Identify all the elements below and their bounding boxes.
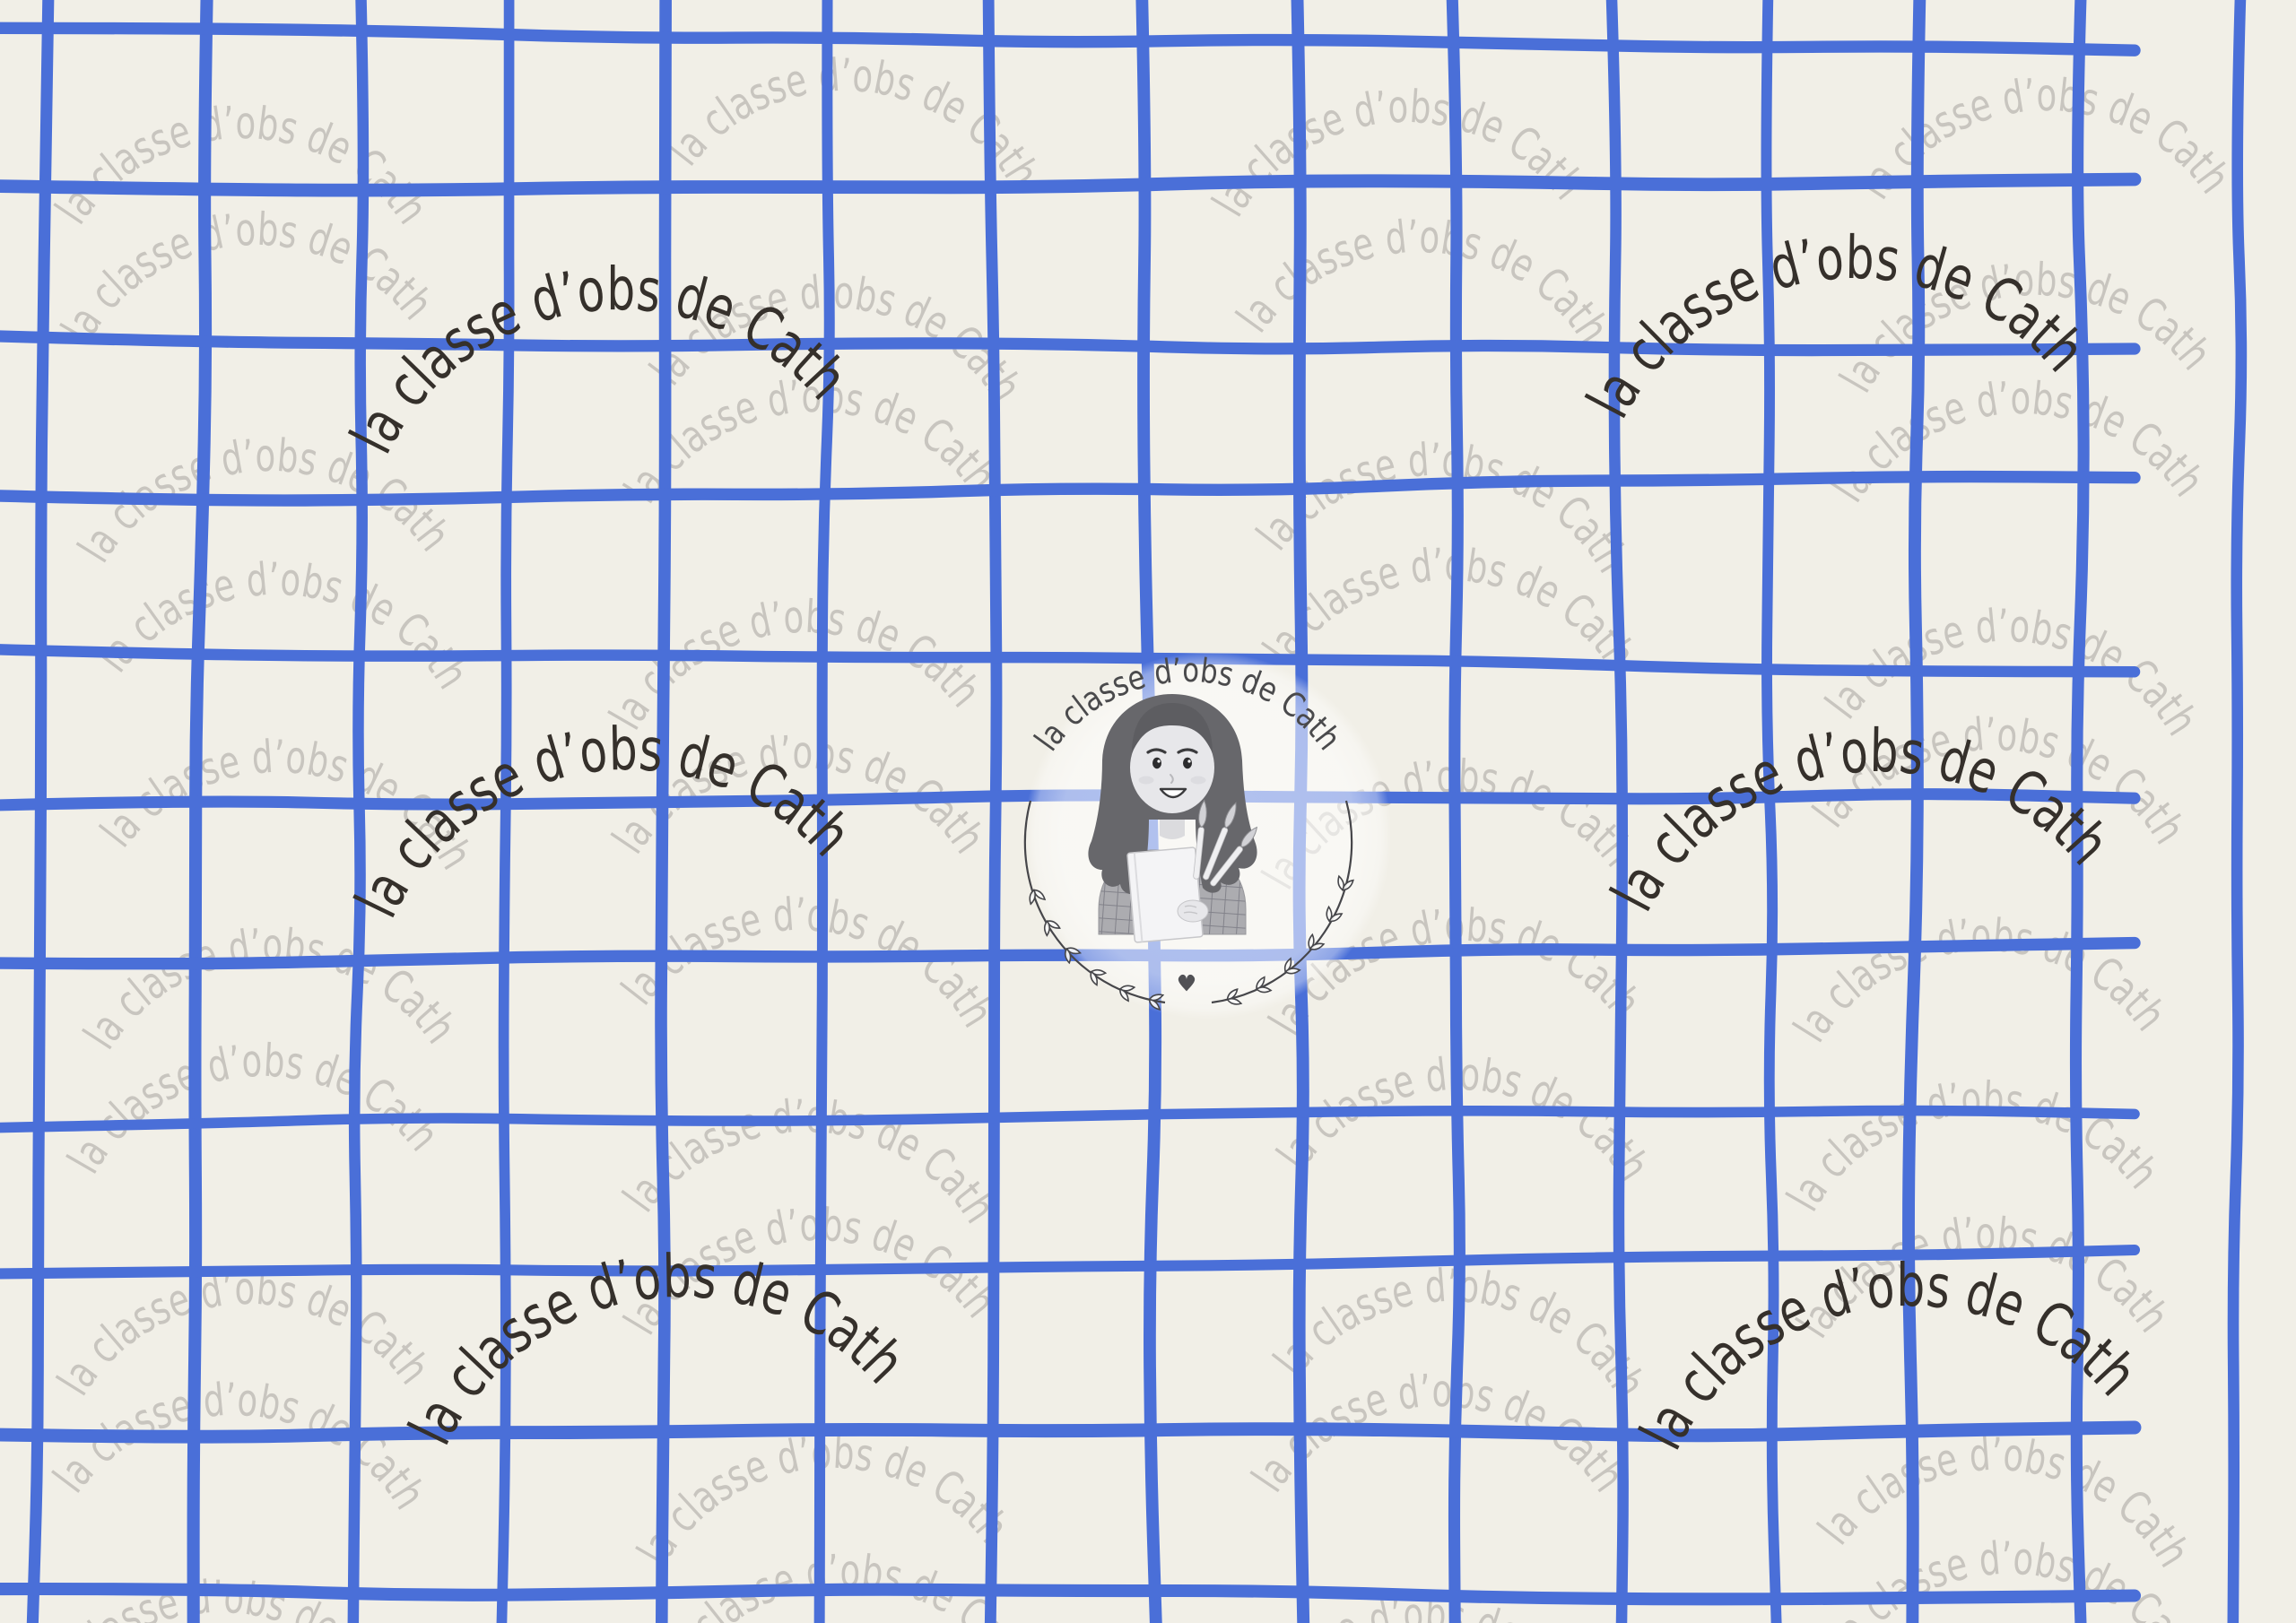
grid-line-vertical — [32, 0, 48, 1623]
brand-logo-badge: la classe d’obs de Cath — [987, 628, 1390, 1058]
laurel-leaf — [1029, 890, 1037, 905]
watermark-arc-faint: la classe d’obs de Cath — [1196, 71, 1596, 228]
pattern-canvas: la classe d’obs de Cathla classe d’obs d… — [0, 0, 2296, 1623]
eye-left — [1152, 758, 1161, 768]
blush-right — [1191, 777, 1206, 785]
laurel-leaf — [1045, 921, 1050, 935]
watermark-arc-faint: la classe d’obs de Cath — [1770, 1059, 2170, 1222]
grid-line-horizontal — [0, 179, 2135, 190]
grid-line-vertical — [2233, 0, 2241, 1623]
eye-glint-left — [1157, 759, 1160, 762]
watermark-arc-faint: la classe d’obs de Cath — [656, 36, 1057, 199]
watermark-arc-faint-text: la classe d’obs de Cath — [85, 543, 484, 700]
watermark-arc-faint-text: la classe d’obs de Cath — [1780, 902, 2178, 1052]
grid-line-vertical — [1452, 0, 1460, 1623]
grid-line-horizontal — [0, 28, 2135, 50]
eye-right — [1183, 758, 1192, 768]
grid-line-horizontal — [0, 1428, 2135, 1436]
watermark-arc-faint-text: la classe d’obs de Cath — [656, 36, 1057, 199]
grid-line-horizontal — [0, 1111, 2135, 1128]
watermark-arc-faint: la classe d’obs de Cath — [1226, 204, 1623, 353]
watermark-arc-faint-text: la classe d’obs de Cath — [1770, 1059, 2170, 1222]
grid-line-vertical — [353, 0, 363, 1623]
watermark-arc-faint: la classe d’obs de Cath — [1780, 902, 2178, 1052]
watermark-arc-faint-text: la classe d’obs de Cath — [1196, 71, 1596, 228]
hand — [1178, 900, 1208, 922]
watermark-arc-faint: la classe d’obs de Cath — [85, 543, 484, 700]
grid-line-horizontal — [0, 335, 2135, 350]
grid-line-horizontal — [0, 1589, 2135, 1599]
book — [1127, 847, 1203, 942]
grid-line-vertical — [661, 0, 665, 1623]
blush-left — [1139, 777, 1154, 785]
eye-glint-right — [1187, 759, 1190, 762]
woman-illustration — [1088, 694, 1259, 942]
watermark-arc-faint-text: la classe d’obs de Cath — [1226, 204, 1623, 353]
